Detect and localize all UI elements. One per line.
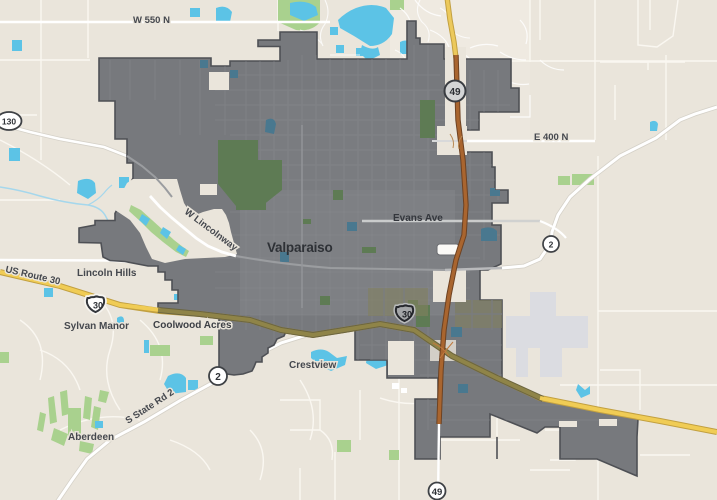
svg-text:W 550 N: W 550 N — [133, 15, 170, 26]
svg-text:Coolwood Acres: Coolwood Acres — [153, 320, 232, 331]
svg-text:2: 2 — [215, 372, 221, 383]
svg-text:Valparaiso: Valparaiso — [267, 240, 333, 255]
svg-text:2: 2 — [549, 240, 554, 250]
svg-text:E 400 N: E 400 N — [534, 132, 568, 143]
svg-text:Lincoln Hills: Lincoln Hills — [77, 268, 137, 279]
svg-text:Sylvan Manor: Sylvan Manor — [64, 321, 129, 332]
svg-text:49: 49 — [449, 87, 461, 98]
svg-text:Crestview: Crestview — [289, 360, 336, 371]
svg-text:130: 130 — [2, 117, 16, 127]
svg-text:30: 30 — [93, 301, 103, 311]
svg-text:30: 30 — [402, 310, 412, 320]
svg-text:49: 49 — [432, 487, 443, 498]
svg-text:Aberdeen: Aberdeen — [68, 432, 114, 443]
svg-text:Evans Ave: Evans Ave — [393, 213, 443, 224]
